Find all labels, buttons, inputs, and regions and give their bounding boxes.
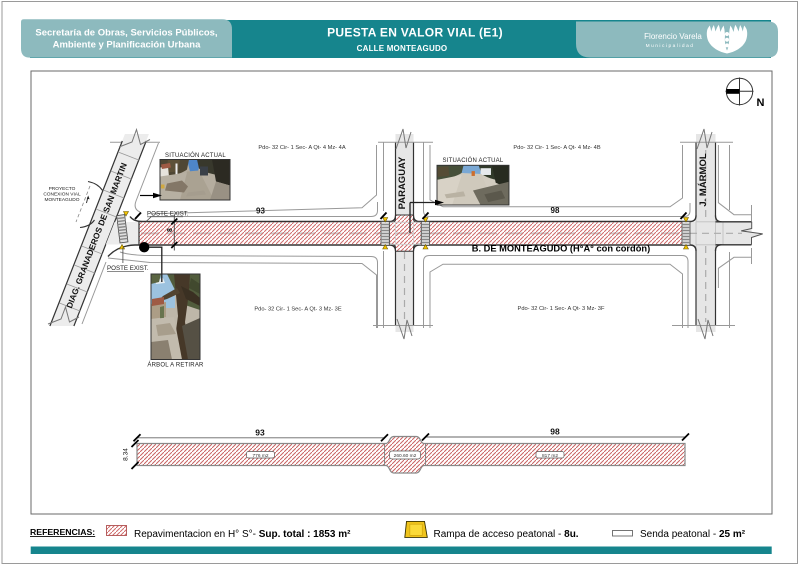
svg-text:POSTE EXIST.: POSTE EXIST. xyxy=(107,265,149,272)
svg-text:Rampa de acceso peatonal - 8u.: Rampa de acceso peatonal - 8u. xyxy=(434,529,579,540)
svg-text:8.34: 8.34 xyxy=(123,448,130,461)
svg-text:SITUACIÓN ACTUAL: SITUACIÓN ACTUAL xyxy=(165,152,226,159)
svg-text:REFERENCIAS:: REFERENCIAS: xyxy=(30,527,95,537)
svg-text:817 m2: 817 m2 xyxy=(542,453,558,459)
svg-text:Pdo- 32 Cir- 1 Sec- A Qt- 4 Mz: Pdo- 32 Cir- 1 Sec- A Qt- 4 Mz- 4A xyxy=(258,145,345,151)
svg-text:Pdo- 32 Cir- 1 Sec- A Qt- 4 Mz: Pdo- 32 Cir- 1 Sec- A Qt- 4 Mz- 4B xyxy=(513,145,600,151)
svg-text:POSTE EXIST.: POSTE EXIST. xyxy=(147,211,189,218)
svg-text:N: N xyxy=(757,97,765,109)
svg-text:MONTEAGUDO: MONTEAGUDO xyxy=(45,197,80,203)
svg-text:Pdo- 32 Cir- 1 Sec- A Qt- 3 Mz: Pdo- 32 Cir- 1 Sec- A Qt- 3 Mz- 3E xyxy=(254,307,341,313)
svg-text:Secretaría de Obras, Servicios: Secretaría de Obras, Servicios Públicos, xyxy=(35,28,217,39)
svg-text:Senda peatonal - 25 m²: Senda peatonal - 25 m² xyxy=(640,529,746,540)
svg-text:J. MÁRMOL: J. MÁRMOL xyxy=(698,153,709,207)
svg-text:Ambiente y Planificación Urban: Ambiente y Planificación Urbana xyxy=(53,40,202,51)
svg-text:260.60 m2: 260.60 m2 xyxy=(394,453,417,459)
svg-text:8: 8 xyxy=(167,228,174,232)
svg-text:CONEXION VIAL: CONEXION VIAL xyxy=(43,192,81,198)
svg-text:ÁRBOL A RETIRAR: ÁRBOL A RETIRAR xyxy=(147,362,204,369)
svg-text:PROYECTO: PROYECTO xyxy=(49,186,76,192)
svg-text:98: 98 xyxy=(550,427,560,437)
svg-text:Pdo- 32 Cir- 1 Sec- A Qt- 3 Mz: Pdo- 32 Cir- 1 Sec- A Qt- 3 Mz- 3F xyxy=(518,306,605,312)
svg-text:98: 98 xyxy=(551,206,560,215)
svg-text:Municipalidad: Municipalidad xyxy=(646,43,695,49)
svg-text:Repavimentacion en H° S°- Sup.: Repavimentacion en H° S°- Sup. total : 1… xyxy=(134,529,351,540)
svg-text:93: 93 xyxy=(256,206,265,215)
svg-text:SITUACIÓN ACTUAL: SITUACIÓN ACTUAL xyxy=(443,157,504,164)
svg-text:PARAGUAY: PARAGUAY xyxy=(397,156,408,209)
svg-text:776 m2: 776 m2 xyxy=(253,453,269,459)
svg-text:93: 93 xyxy=(255,428,265,438)
svg-text:PUESTA EN VALOR VIAL (E1): PUESTA EN VALOR VIAL (E1) xyxy=(327,26,503,40)
svg-text:Florencio Varela: Florencio Varela xyxy=(644,32,702,41)
svg-text:B. DE MONTEAGUDO (H°A° con cor: B. DE MONTEAGUDO (H°A° con cordón) xyxy=(472,244,650,254)
svg-text:CALLE MONTEAGUDO: CALLE MONTEAGUDO xyxy=(357,44,448,53)
